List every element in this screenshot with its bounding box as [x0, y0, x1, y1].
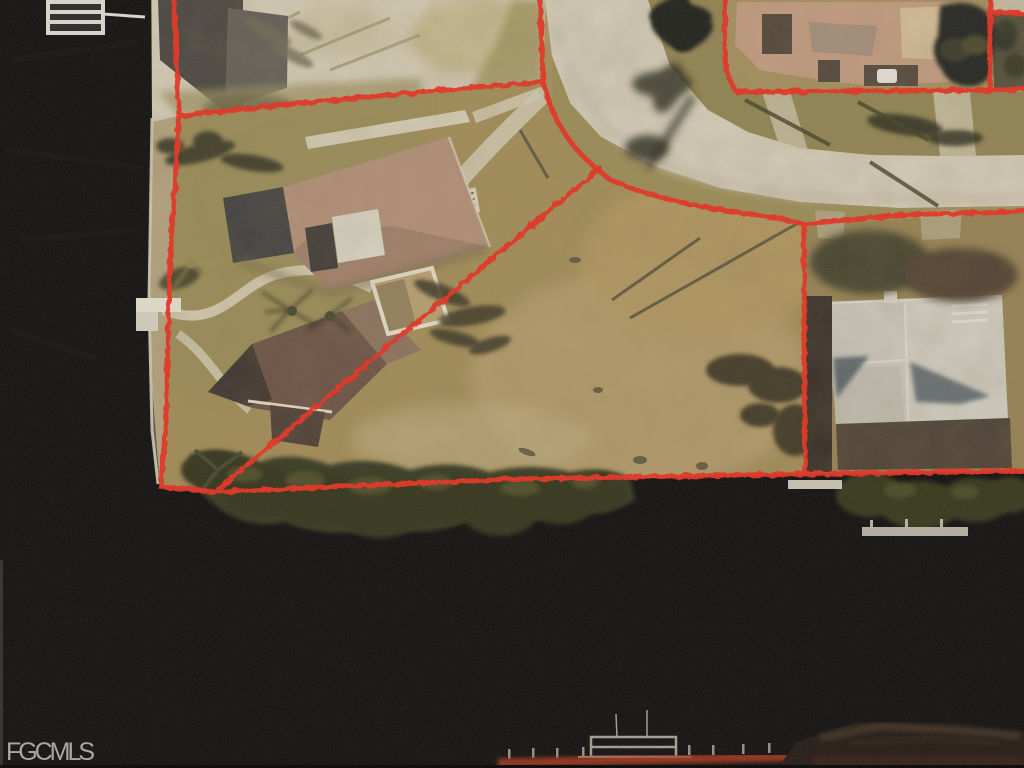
- svg-text:FGCMLS: FGCMLS: [6, 738, 95, 766]
